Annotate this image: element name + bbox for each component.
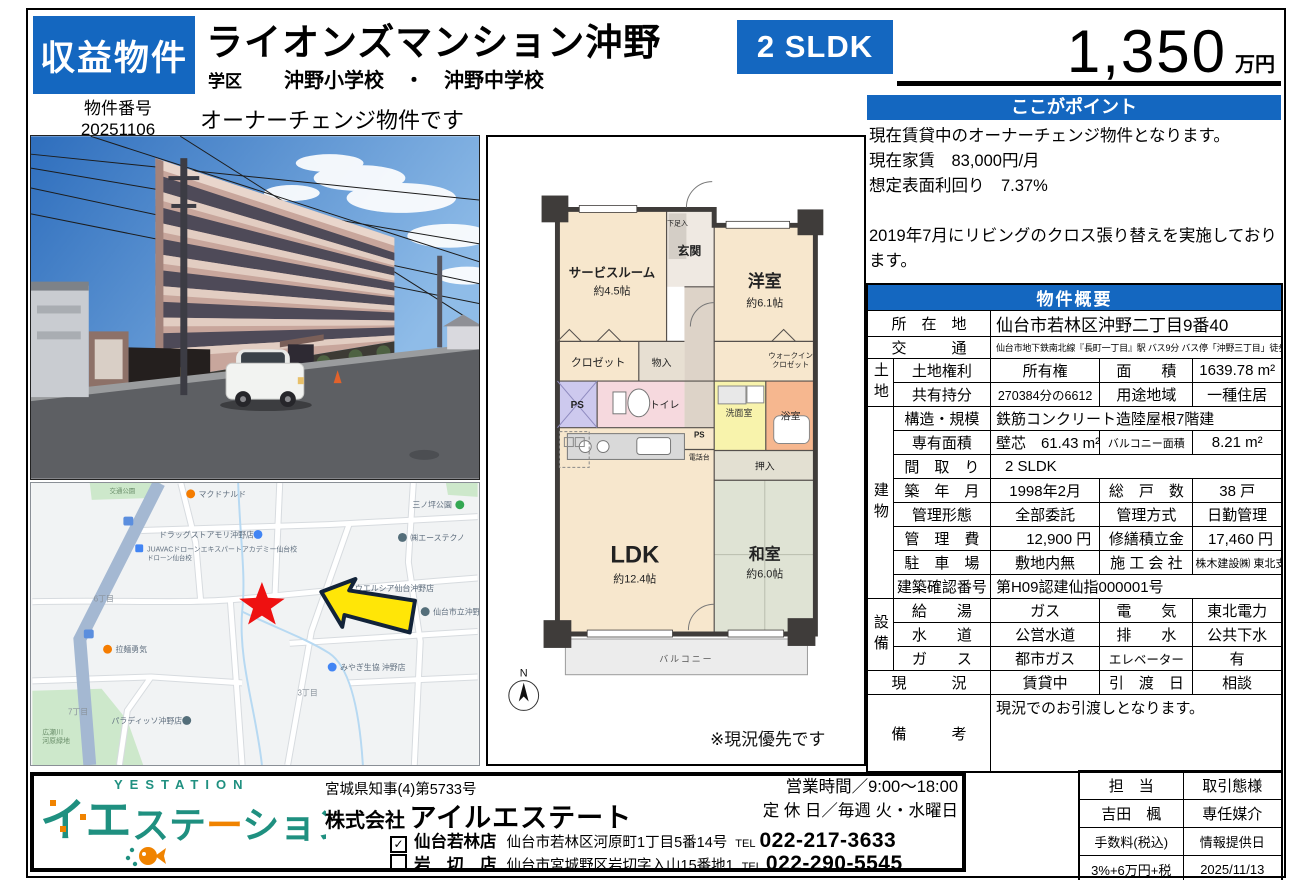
mgmt-form-value: 全部委託 — [990, 503, 1099, 527]
store-phone: 022-217-3633 — [759, 829, 896, 853]
handover-value: 相談 — [1193, 671, 1282, 695]
svg-text:ウォークイン: ウォークイン — [768, 351, 813, 360]
elevator-value: 有 — [1193, 647, 1282, 671]
reserve-value: 17,460 円 — [1193, 527, 1282, 551]
property-title: ライオンズマンション沖野 — [206, 12, 661, 66]
structure-value: 鉄筋コンクリート造陸屋根7階建 — [990, 407, 1282, 431]
group-building: 建物 — [867, 407, 893, 599]
row-label: 総 戸 数 — [1100, 479, 1193, 503]
svg-text:下足入: 下足入 — [667, 219, 688, 227]
store-row-iwakiri: 岩 切 店 仙台市宮城野区岩切字入山15番地1 TEL 022-290-5545 — [390, 851, 903, 876]
row-label: 共有持分 — [893, 383, 990, 407]
row-label: 管理形態 — [893, 503, 990, 527]
row-label: 備 考 — [867, 695, 990, 773]
row-label: 用途地域 — [1100, 383, 1193, 407]
route-shield-icon — [84, 629, 94, 638]
current-status-note: ※現況優先です — [710, 730, 825, 749]
store-name: 岩 切 店 — [414, 851, 497, 875]
svg-text:物入: 物入 — [652, 356, 672, 369]
row-label: バルコニー面積 — [1100, 431, 1193, 455]
hot-water-value: ガス — [990, 599, 1099, 623]
svg-text:㈱エーステクノ: ㈱エーステクノ — [410, 532, 464, 542]
point-line: 2019年7月にリビングのクロス張り替えを実施しております。 — [869, 224, 1281, 274]
location-map: マクドナルド ドラッグストアモリ沖野店 JUAVACドローンエキスパートアカデミ… — [30, 482, 480, 766]
svg-text:マクドナルド: マクドナルド — [199, 490, 246, 499]
remarks-value: 現況でのお引渡しとなります。 — [990, 695, 1282, 773]
fish-icon — [126, 847, 166, 866]
row-label: 管 理 費 — [893, 527, 990, 551]
svg-text:約6.1帖: 約6.1帖 — [746, 296, 783, 310]
svg-text:河原緑地: 河原緑地 — [42, 736, 70, 745]
unchecked-checkbox — [390, 854, 407, 871]
compass-icon: N — [509, 668, 539, 711]
route-shield-icon — [123, 517, 133, 526]
row-label: 駐 車 場 — [893, 551, 990, 575]
svg-text:LDK: LDK — [610, 542, 659, 569]
row-label: 電 気 — [1100, 599, 1193, 623]
gas-value: 都市ガス — [990, 647, 1099, 671]
business-hours: 営業時間／9:00～18:00 定 休 日／毎週 火・水曜日 — [640, 776, 958, 824]
point-line: 現在賃貸中のオーナーチェンジ物件となります。 — [869, 124, 1281, 149]
staff-name: 吉田 楓 — [1079, 800, 1183, 828]
svg-text:PS: PS — [694, 431, 705, 440]
svg-text:ドラッグストアモリ沖野店: ドラッグストアモリ沖野店 — [159, 529, 254, 539]
tel-label: TEL — [735, 838, 755, 850]
mcdonalds-icon — [186, 489, 195, 498]
floor-plan: 玄関 下足入 洋室 約6.1帖 サービスルーム 約4.5帖 クロゼット 物入 P… — [486, 135, 866, 766]
layout-value: 2 SLDK — [990, 455, 1282, 479]
logo-jp-station: ステーション — [132, 805, 326, 846]
drainage-value: 公共下水 — [1193, 623, 1282, 647]
row-label: 間 取 り — [893, 455, 990, 479]
flyer-page: 収益物件 ライオンズマンション沖野 学区沖野小学校 ・ 沖野中学校 物件番号 2… — [0, 0, 1307, 880]
info-date-value: 2025/11/13 — [1183, 856, 1282, 880]
school-district-row: 学区沖野小学校 ・ 沖野中学校 — [208, 64, 544, 93]
row-label: 築 年 月 — [893, 479, 990, 503]
store-phone: 022-290-5545 — [766, 852, 903, 876]
map-illustration: マクドナルド ドラッグストアモリ沖野店 JUAVACドローンエキスパートアカデミ… — [31, 483, 479, 765]
share-value: 270384分の6612 — [990, 383, 1099, 407]
group-land: 土地 — [867, 359, 893, 407]
parking-value: 敷地内無 — [990, 551, 1099, 575]
confirm-number-value: 第H09認建仙指000001号 — [990, 575, 1282, 599]
balcony-area-value: 8.21 m² — [1193, 431, 1282, 455]
svg-text:サービスルーム: サービスルーム — [569, 265, 655, 280]
svg-text:仙台市立沖野中: 仙台市立沖野中 — [433, 607, 479, 617]
svg-text:7丁目: 7丁目 — [68, 708, 88, 717]
svg-text:PS: PS — [571, 400, 585, 411]
row-label: ガ ス — [893, 647, 990, 671]
svg-text:約12.4帖: 約12.4帖 — [613, 571, 656, 585]
land-area-value: 1639.78 m² — [1193, 359, 1282, 383]
point-line: 想定表面利回り 7.37% — [869, 174, 1281, 199]
svg-text:6丁目: 6丁目 — [94, 595, 114, 604]
built-value: 1998年2月 — [990, 479, 1099, 503]
svg-text:3丁目: 3丁目 — [298, 689, 318, 698]
row-label: 専有面積 — [893, 431, 990, 455]
exclusive-area-value: 壁芯 61.43 m² — [990, 431, 1099, 455]
property-overview-table: 物件概要 所 在 地 仙台市若林区沖野二丁目9番40 交 通 仙台市地下鉄南北線… — [866, 283, 1283, 773]
location-value: 仙台市若林区沖野二丁目9番40 — [990, 311, 1282, 337]
hours-text: 営業時間／9:00～18:00 — [640, 776, 958, 800]
access-value: 仙台市地下鉄南北線『長町一丁目』駅 バス9分 バス停「沖野三丁目」徒歩3分 — [990, 337, 1282, 359]
water-value: 公営水道 — [990, 623, 1099, 647]
overview-title: 物件概要 — [867, 284, 1282, 311]
store-address: 仙台市宮城野区岩切字入山15番地1 — [507, 854, 734, 875]
park-icon — [455, 500, 464, 509]
property-number-label: 物件番号 — [58, 98, 178, 119]
svg-text:広瀬川: 広瀬川 — [42, 727, 63, 736]
row-label: 現 況 — [867, 671, 990, 695]
row-label: 構造・規模 — [893, 407, 990, 431]
fee-label: 手数料(税込) — [1079, 828, 1183, 856]
row-label: 引 渡 日 — [1100, 671, 1193, 695]
transaction-type-value: 専任媒介 — [1183, 800, 1282, 828]
row-label: 土地権利 — [893, 359, 990, 383]
svg-text:みやぎ生協 沖野店: みやぎ生協 沖野店 — [340, 662, 406, 672]
group-facility: 設備 — [867, 599, 893, 671]
svg-text:三ノ坪公園: 三ノ坪公園 — [412, 501, 452, 510]
row-label: 管理方式 — [1100, 503, 1193, 527]
row-label: 給 湯 — [893, 599, 990, 623]
row-label: 建築確認番号 — [893, 575, 990, 599]
svg-text:約4.5帖: 約4.5帖 — [594, 284, 631, 298]
electricity-value: 東北電力 — [1193, 599, 1282, 623]
holiday-text: 定 休 日／毎週 火・水曜日 — [640, 800, 958, 824]
layout-badge: 2 SLDK — [737, 20, 893, 74]
row-label: エレベーター — [1100, 647, 1193, 671]
builder-value: 株木建設㈱ 東北支店 — [1193, 551, 1282, 575]
tel-label: TEL — [742, 861, 762, 873]
company-logo: YESTATION イエ ステーション — [36, 774, 326, 875]
svg-text:JUAVACドローンエキスパートアカデミー仙台校: JUAVACドローンエキスパートアカデミー仙台校 — [147, 544, 297, 553]
info-date-label: 情報提供日 — [1183, 828, 1282, 856]
svg-text:バルコニー: バルコニー — [659, 654, 713, 664]
svg-text:電話台: 電話台 — [689, 452, 710, 461]
units-value: 38 戸 — [1193, 479, 1282, 503]
income-property-badge: 収益物件 — [33, 16, 195, 94]
point-line: 現在家賃 83,000円/月 — [869, 149, 1281, 174]
svg-text:N: N — [520, 668, 528, 680]
svg-text:押入: 押入 — [755, 459, 775, 472]
company-icon — [398, 533, 407, 542]
store-name: 仙台若林店 — [414, 828, 497, 852]
store-address: 仙台市若林区河原町1丁目5番14号 — [507, 831, 728, 852]
status-value: 賃貸中 — [990, 671, 1099, 695]
owner-change-note: オーナーチェンジ物件です — [200, 103, 464, 135]
logo-en-text: YESTATION — [114, 777, 249, 792]
transaction-type-label: 取引態様 — [1183, 771, 1282, 800]
manhole — [409, 450, 439, 460]
svg-text:洋室: 洋室 — [748, 271, 782, 291]
mgmt-fee-value: 12,900 円 — [990, 527, 1099, 551]
svg-text:拉麺勇気: 拉麺勇気 — [115, 644, 147, 654]
school-names: 沖野小学校 ・ 沖野中学校 — [284, 70, 544, 92]
row-label: 排 水 — [1100, 623, 1193, 647]
fee-value: 3%+6万円+税 — [1079, 856, 1183, 880]
price-block: 1,350 万円 — [897, 10, 1281, 86]
land-right-value: 所有権 — [990, 359, 1099, 383]
school-icon — [421, 607, 430, 616]
ramen-icon — [103, 645, 112, 654]
agent-info-table: 担 当 取引態様 吉田 楓 専任媒介 手数料(税込) 情報提供日 3%+6万円+… — [1078, 770, 1283, 880]
price-unit: 万円 — [1235, 48, 1275, 77]
point-header: ここがポイント — [867, 95, 1281, 120]
svg-text:浴室: 浴室 — [781, 410, 801, 423]
svg-text:トイレ: トイレ — [650, 400, 680, 411]
row-label: 水 道 — [893, 623, 990, 647]
svg-text:交通公園: 交通公園 — [110, 486, 136, 495]
drugstore-icon — [254, 530, 263, 539]
svg-text:洗面室: 洗面室 — [726, 407, 753, 418]
staff-label: 担 当 — [1079, 771, 1183, 800]
store-row-wakabayashi: ✓ 仙台若林店 仙台市若林区河原町1丁目5番14号 TEL 022-217-36… — [390, 828, 896, 853]
row-label: 所 在 地 — [867, 311, 990, 337]
svg-text:玄関: 玄関 — [677, 244, 701, 258]
svg-text:約6.0帖: 約6.0帖 — [746, 566, 783, 580]
paradiso-icon — [182, 716, 191, 725]
mgmt-style-value: 日勤管理 — [1193, 503, 1282, 527]
school-district-label: 学区 — [208, 72, 242, 91]
building-photo-illustration — [31, 136, 479, 479]
svg-text:パラディッソ沖野店: パラディッソ沖野店 — [112, 715, 183, 725]
svg-text:ドローン仙台校: ドローン仙台校 — [147, 553, 192, 562]
zoning-value: 一種住居 — [1193, 383, 1282, 407]
drone-school-icon — [135, 544, 143, 552]
building-photo — [30, 135, 480, 480]
row-label: 修繕積立金 — [1100, 527, 1193, 551]
row-label: 面 積 — [1100, 359, 1193, 383]
row-label: 施 工 会 社 — [1100, 551, 1193, 575]
coop-icon — [328, 663, 337, 672]
svg-text:クロゼット: クロゼット — [772, 359, 809, 369]
price-value: 1,350 — [1067, 25, 1227, 79]
svg-text:クロゼット: クロゼット — [571, 356, 626, 369]
floor-plan-drawing: 玄関 下足入 洋室 約6.1帖 サービスルーム 約4.5帖 クロゼット 物入 P… — [488, 137, 864, 764]
svg-text:和室: 和室 — [749, 545, 781, 564]
row-label: 交 通 — [867, 337, 990, 359]
point-body: 現在賃貸中のオーナーチェンジ物件となります。 現在家賃 83,000円/月 想定… — [869, 124, 1281, 274]
